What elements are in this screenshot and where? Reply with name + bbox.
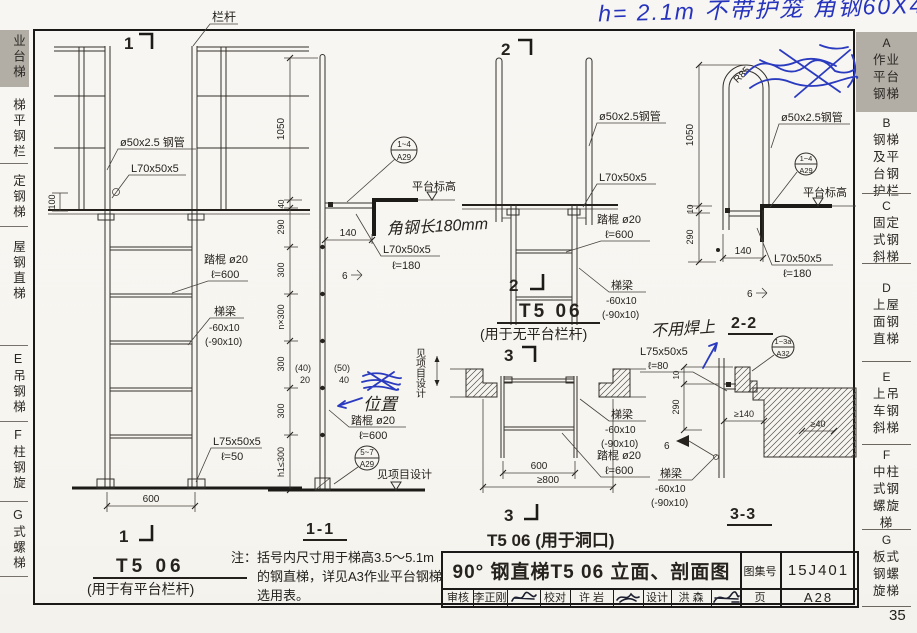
- sheet-number: A28: [780, 588, 857, 606]
- design-label: 设计: [643, 588, 671, 606]
- proof-label: 校对: [540, 588, 570, 606]
- detail-bubble-sheet: A32: [776, 349, 789, 358]
- title-t506-opening: T5 06 (用于洞口): [487, 531, 615, 550]
- detail-bubble-sheet: A29: [397, 153, 412, 162]
- label-rung-length: ℓ=600: [605, 465, 633, 477]
- page-number: 35: [889, 607, 906, 624]
- dim-10: 10: [686, 204, 695, 213]
- signature-scribble: [614, 589, 642, 605]
- dim-10: 10: [672, 370, 681, 379]
- label-angle-length: ℓ=180: [783, 268, 811, 280]
- label-beam-size-alt: (-90x10): [602, 310, 639, 321]
- hw-no-weld-note: 不用焊上: [650, 318, 716, 340]
- section-mark-1-bottom: 1: [119, 527, 128, 546]
- note-line-2: 的钢直梯，详见A3作业平台钢梯: [231, 567, 476, 586]
- label-angle: L70x50x5: [774, 253, 822, 265]
- designer-signature: [711, 588, 740, 606]
- label-foot-angle: L75x50x5: [213, 436, 261, 448]
- label-rung: 踏棍 ø20: [351, 413, 395, 427]
- scanned-standard-drawing-page: h= 2.1m 不带护笼 角钢60X40 业台梯 梯平钢栏 定钢梯 屋钢直梯 E…: [0, 0, 917, 633]
- section-mark-2-bottom: 2: [509, 276, 518, 295]
- title-t506: T5 06: [116, 556, 185, 577]
- label-beam-size-alt: (-90x10): [205, 337, 242, 348]
- detail-bubble2-top: 5~7: [360, 448, 374, 457]
- dim-1050: 1050: [685, 123, 696, 146]
- title-section-1-1: 1-1: [306, 521, 335, 538]
- proofer-name: 许 岩: [570, 588, 613, 606]
- review-label: 审核: [443, 588, 473, 606]
- designer-name: 洪 森: [671, 588, 711, 606]
- label-rung-length: ℓ=600: [605, 229, 633, 241]
- label-beam: 梯梁: [214, 304, 236, 318]
- label-rung: 踏棍 ø20: [204, 252, 248, 266]
- label-angle-length: ℓ=180: [392, 260, 420, 272]
- dim-290: 290: [671, 399, 681, 414]
- section-2-2: R85 平台标高 1~4 A29 ø50x2.5钢管 1050 10 290: [685, 62, 856, 334]
- offset-paren-50: (50): [334, 363, 350, 373]
- section-mark-1-top: 1: [124, 34, 133, 53]
- offset-40: 40: [339, 375, 349, 385]
- label-beam: 梯梁: [611, 407, 633, 421]
- weld-size: 6: [342, 271, 348, 282]
- dim-300: 300: [276, 403, 286, 418]
- label-angle: L70x50x5: [383, 244, 431, 256]
- hw-angle-length-note: 角钢长180mm: [386, 215, 488, 238]
- section-mark-3-top: 3: [504, 346, 513, 365]
- label-beam-size-alt: (-90x10): [601, 439, 638, 450]
- label-beam-size: -60x10: [655, 484, 686, 495]
- sheet-title: 90° 钢直梯T5 06 立面、剖面图: [443, 553, 740, 588]
- dim-n300: n×300: [276, 304, 286, 329]
- title-block: 90° 钢直梯T5 06 立面、剖面图 图集号 15J401 审核 李正刚 校对…: [441, 551, 859, 608]
- dim-1050: 1050: [276, 117, 287, 140]
- section-mark-2-top: 2: [501, 40, 510, 59]
- dim-300: 300: [276, 262, 286, 277]
- hw-arrow: [703, 343, 717, 368]
- note-line-1: 注：括号内尺寸用于梯高3.5～5.1m: [231, 548, 476, 567]
- detail-bubble-top: 1~4: [800, 154, 813, 163]
- hw-position-note: 位置: [363, 395, 399, 414]
- detail-bubble-sheet: A29: [799, 166, 812, 175]
- label-rung: 踏棍 ø20: [597, 212, 641, 226]
- title-section-2-2: 2-2: [731, 315, 757, 332]
- dim-800: ≥800: [537, 475, 560, 486]
- dim-290: 290: [276, 219, 286, 234]
- signature-scribble: [509, 589, 539, 605]
- section-mark-3-bottom: 3: [504, 506, 513, 525]
- subtitle-no-railing: (用于无平台栏杆): [480, 326, 587, 342]
- dim-140: 140: [340, 228, 357, 239]
- subtitle-with-railing: (用于有平台栏杆): [87, 581, 194, 597]
- label-beam: 梯梁: [611, 278, 633, 292]
- hw-scribble-crossed-word: [362, 372, 401, 390]
- title-t506: T5 06: [519, 301, 583, 322]
- label-pipe: ø50x2.5钢管: [781, 110, 843, 124]
- dim-clearance: ≥140: [734, 409, 754, 419]
- page-label: 页: [740, 588, 780, 606]
- label-beam-size: -60x10: [605, 425, 636, 436]
- dim-h1: h1≤300: [276, 447, 286, 477]
- label-rung-length: ℓ=600: [359, 430, 387, 442]
- dim-100: 100: [47, 194, 57, 209]
- label-beam-size-alt: (-90x10): [651, 498, 688, 509]
- label-angle: L70x50x5: [599, 172, 647, 184]
- label-railing: 栏杆: [212, 9, 236, 24]
- label-pipe: ø50x2.5 钢管: [120, 135, 185, 149]
- label-see-project: 见项目设计: [377, 468, 432, 481]
- dim-edge: ≥40: [811, 419, 826, 429]
- plan-t506-opening: 3 600 ≥800 梯梁 -60x10 (-90x10) 踏棍 ø20 ℓ=: [450, 346, 650, 552]
- label-rung-length: ℓ=600: [211, 269, 239, 281]
- dim-40: 40: [277, 199, 286, 208]
- atlas-number-label: 图集号: [740, 553, 780, 588]
- dim-600: 600: [143, 494, 160, 505]
- label-platform-level: 平台标高: [412, 179, 456, 193]
- hw-arrow: [338, 398, 362, 408]
- drawing-note: 注：括号内尺寸用于梯高3.5～5.1m 的钢直梯，详见A3作业平台钢梯 选用表。: [231, 548, 476, 605]
- label-angle: L70x50x5: [131, 163, 179, 175]
- reviewer-signature: [507, 588, 540, 606]
- label-rung: 踏棍 ø20: [597, 448, 641, 462]
- elevation-t506-with-railing: 600 100 1 1 栏杆 ø50x2.5 钢管 L70x50x5 踏棍 ø2…: [47, 9, 310, 597]
- label-angle-length: ℓ=80: [648, 361, 669, 372]
- detail-bubble-top: 1~4: [397, 140, 411, 149]
- label-beam-size: -60x10: [606, 296, 637, 307]
- elevation-t506-no-railing: 2 2 ø50x2.5钢管 L70x50x5 踏棍 ø20 ℓ=600 梯梁 -…: [462, 40, 666, 342]
- weld-size: 6: [664, 441, 670, 452]
- drawing-canvas: 600 100 1 1 栏杆 ø50x2.5 钢管 L70x50x5 踏棍 ø2…: [0, 0, 917, 633]
- dim-300: 300: [276, 356, 286, 371]
- offset-20: 20: [300, 375, 310, 385]
- atlas-number: 15J401: [780, 553, 857, 588]
- section-3-3: 10 290 ≥140 ≥40 6 梯梁 -60x10 (-90x10) 1~3…: [640, 336, 856, 525]
- label-angle: L75x50x5: [640, 346, 688, 358]
- dim-140: 140: [735, 246, 752, 257]
- label-pipe: ø50x2.5钢管: [599, 109, 661, 123]
- label-see-project-vertical: 见项目设计: [414, 348, 426, 399]
- label-beam: 梯梁: [660, 466, 682, 480]
- dim-600: 600: [531, 461, 548, 472]
- detail-bubble2-sheet: A29: [360, 460, 375, 469]
- dim-290: 290: [685, 229, 695, 244]
- weld-size: 6: [747, 289, 753, 300]
- proofer-signature: [613, 588, 643, 606]
- signature-scribble: [712, 589, 740, 605]
- offset-paren-40: (40): [295, 363, 311, 373]
- ladder-rungs: [110, 247, 192, 438]
- section-1-1: 平台标高 1~4 A29 1050 40 290 300 n×300: [268, 55, 456, 541]
- note-line-3: 选用表。: [231, 586, 476, 605]
- label-foot-length: ℓ=50: [221, 451, 243, 463]
- detail-bubble-top: 1~3a: [775, 337, 793, 346]
- label-beam-size: -60x10: [209, 323, 240, 334]
- title-section-3-3: 3-3: [730, 506, 756, 523]
- reviewer-name: 李正刚: [473, 588, 507, 606]
- label-platform-level: 平台标高: [803, 185, 847, 199]
